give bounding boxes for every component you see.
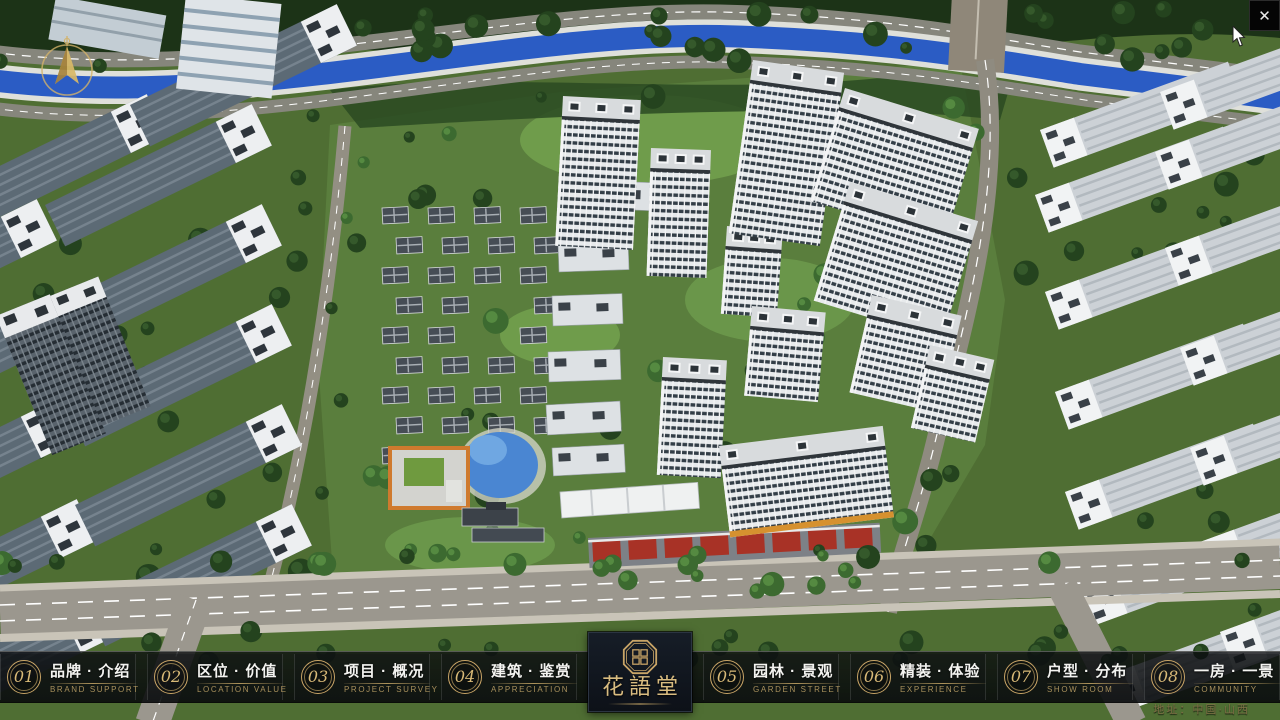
- nav-label-en: LOCATION VALUE: [197, 685, 288, 694]
- nav-label-en: BRAND SUPPORT: [50, 685, 140, 694]
- nav-number-badge: 08: [1151, 660, 1185, 694]
- nav-item-architecture[interactable]: 04 建筑 · 鉴赏APPRECIATION: [441, 654, 577, 700]
- nav-label-zh: 一房 · 一景: [1194, 660, 1274, 681]
- nav-item-floorplan-distribution[interactable]: 07 户型 · 分布SHOW ROOM: [997, 654, 1133, 700]
- nav-item-interior-experience[interactable]: 06 精装 · 体验EXPERIENCE: [850, 654, 986, 700]
- nav-label-zh: 园林 · 景观: [753, 660, 833, 681]
- nav-number-badge: 02: [154, 660, 188, 694]
- nav-label-en: SHOW ROOM: [1047, 685, 1113, 694]
- nav-item-project-survey[interactable]: 03 项目 · 概况PROJECT SURVEY: [294, 654, 430, 700]
- brand-name: 花語堂: [602, 677, 683, 699]
- address-label: 地址：中国·山西: [1153, 701, 1250, 717]
- nav-label-zh: 精装 · 体验: [900, 660, 980, 681]
- nav-item-garden-landscape[interactable]: 05 园林 · 景观GARDEN STREET: [703, 654, 839, 700]
- nav-number-badge: 04: [448, 660, 482, 694]
- nav-number-badge: 03: [301, 660, 335, 694]
- nav-number-badge: 07: [1004, 660, 1038, 694]
- nav-label-zh: 区位 · 价值: [197, 660, 277, 681]
- nav-label-en: GARDEN STREET: [753, 685, 842, 694]
- nav-label-en: APPRECIATION: [491, 685, 569, 694]
- nav-label-zh: 品牌 · 介绍: [50, 660, 130, 681]
- close-button[interactable]: ✕: [1249, 0, 1280, 31]
- logo-panel[interactable]: 花語堂: [588, 632, 692, 712]
- nav-label-zh: 户型 · 分布: [1047, 660, 1127, 681]
- compass-north-icon: [36, 34, 98, 100]
- presentation-window: ✕ 01 品牌 · 介绍BRAND SUPPORT 02 区位 · 价值LOCA…: [0, 0, 1280, 720]
- masterplan-3d-render[interactable]: [0, 0, 1280, 720]
- bottom-navigation-bar: 01 品牌 · 介绍BRAND SUPPORT 02 区位 · 价值LOCATI…: [0, 651, 1280, 703]
- nav-number-badge: 06: [857, 660, 891, 694]
- nav-label-en: PROJECT SURVEY: [344, 685, 439, 694]
- nav-number-badge: 05: [710, 660, 744, 694]
- nav-label-en: EXPERIENCE: [900, 685, 968, 694]
- nav-number-badge: 01: [7, 660, 41, 694]
- nav-label-en: COMMUNITY: [1194, 685, 1258, 694]
- logo-subtitle-line: [608, 703, 672, 705]
- nav-item-brand-intro[interactable]: 01 品牌 · 介绍BRAND SUPPORT: [0, 654, 136, 700]
- nav-label-zh: 建筑 · 鉴赏: [491, 660, 571, 681]
- nav-item-room-view[interactable]: 08 一房 · 一景COMMUNITY: [1144, 654, 1280, 700]
- nav-label-zh: 项目 · 概况: [344, 660, 424, 681]
- brand-seal-icon: [622, 639, 658, 675]
- nav-item-location-value[interactable]: 02 区位 · 价值LOCATION VALUE: [147, 654, 283, 700]
